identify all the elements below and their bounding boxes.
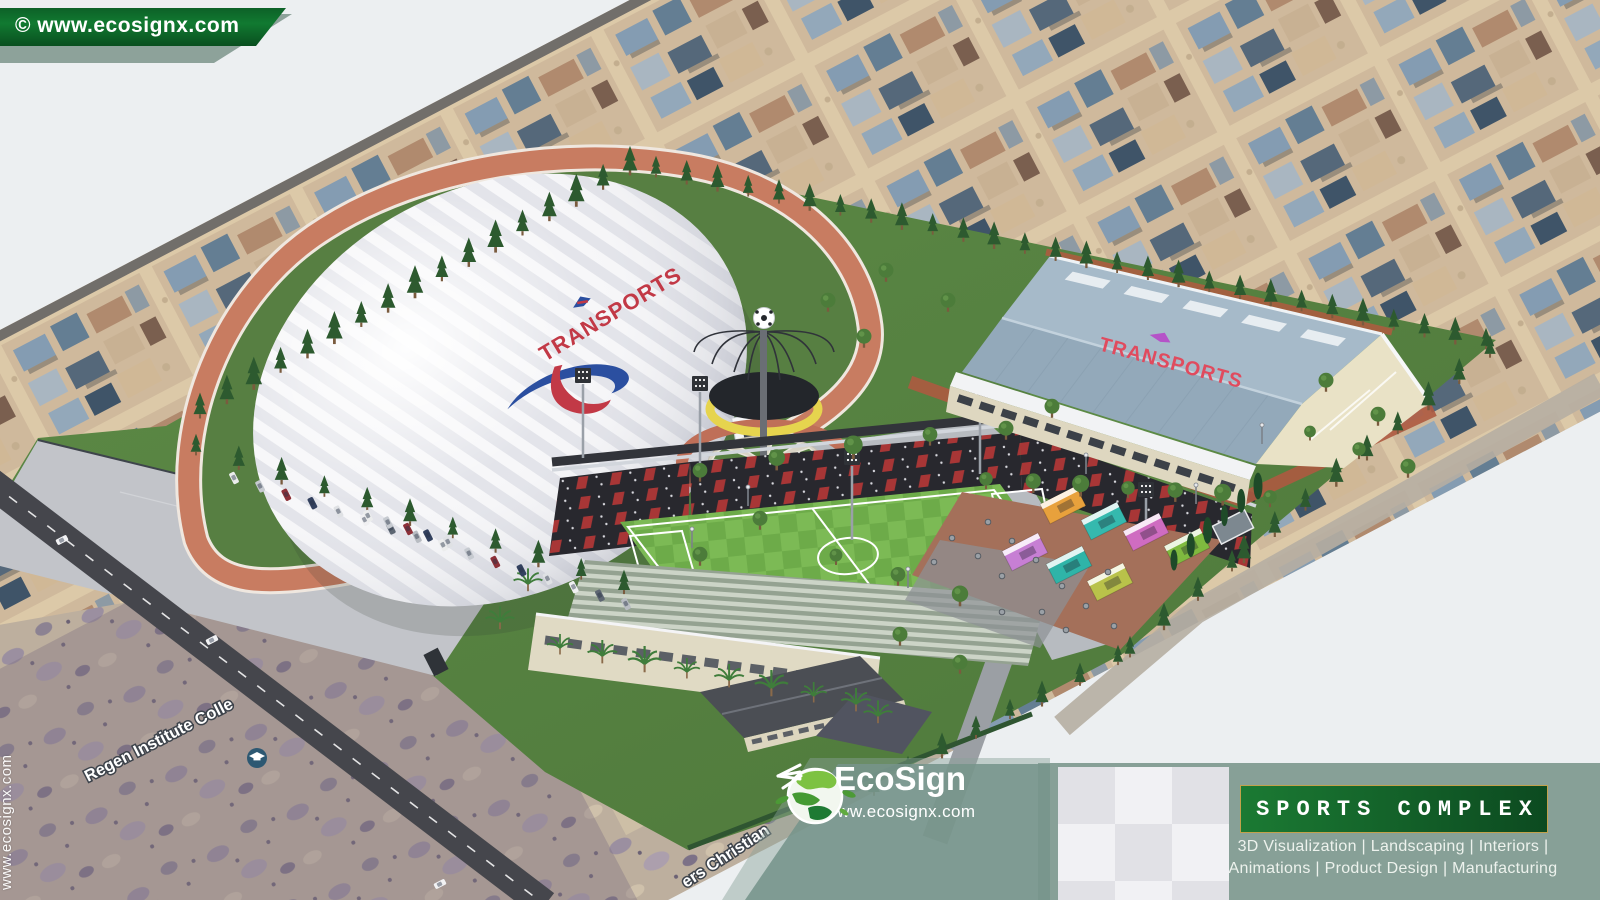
copyright-banner-text: © www.ecosignx.com: [15, 14, 239, 38]
table: [1111, 623, 1117, 629]
table: [1105, 569, 1111, 575]
cypress-hedge: [1254, 473, 1263, 500]
services-list: 3D Visualization | Landscaping | Interio…: [1228, 836, 1558, 880]
table: [975, 553, 981, 559]
services-line-1: 3D Visualization | Landscaping | Interio…: [1228, 836, 1558, 858]
table: [1009, 538, 1015, 544]
table: [999, 573, 1005, 579]
table: [985, 519, 991, 525]
cypress-hedge: [1221, 505, 1228, 526]
checker-pattern: [1058, 767, 1229, 900]
cypress-hedge: [1187, 533, 1195, 557]
project-title: SPORTS COMPLEX: [1249, 797, 1539, 822]
table: [1059, 583, 1065, 589]
services-line-2: Animations | Product Design | Manufactur…: [1228, 858, 1558, 880]
table: [931, 559, 937, 565]
table: [1083, 603, 1089, 609]
side-watermark: www.ecosignx.com: [0, 628, 22, 890]
table: [1033, 557, 1039, 563]
table: [1039, 609, 1045, 615]
cypress-hedge: [1170, 549, 1177, 570]
logo-block: EcoSign www.ecosignx.com: [770, 760, 1030, 822]
table: [1063, 627, 1069, 633]
project-title-box: SPORTS COMPLEX: [1240, 785, 1548, 833]
cypress-hedge: [1237, 489, 1245, 513]
table: [999, 609, 1005, 615]
render-image: TRANSPORTS: [0, 0, 1600, 900]
table: [949, 535, 955, 541]
cypress-hedge: [1203, 517, 1212, 544]
wordmark-x-icon: [770, 760, 804, 792]
graduation-cap-icon: [247, 748, 267, 768]
